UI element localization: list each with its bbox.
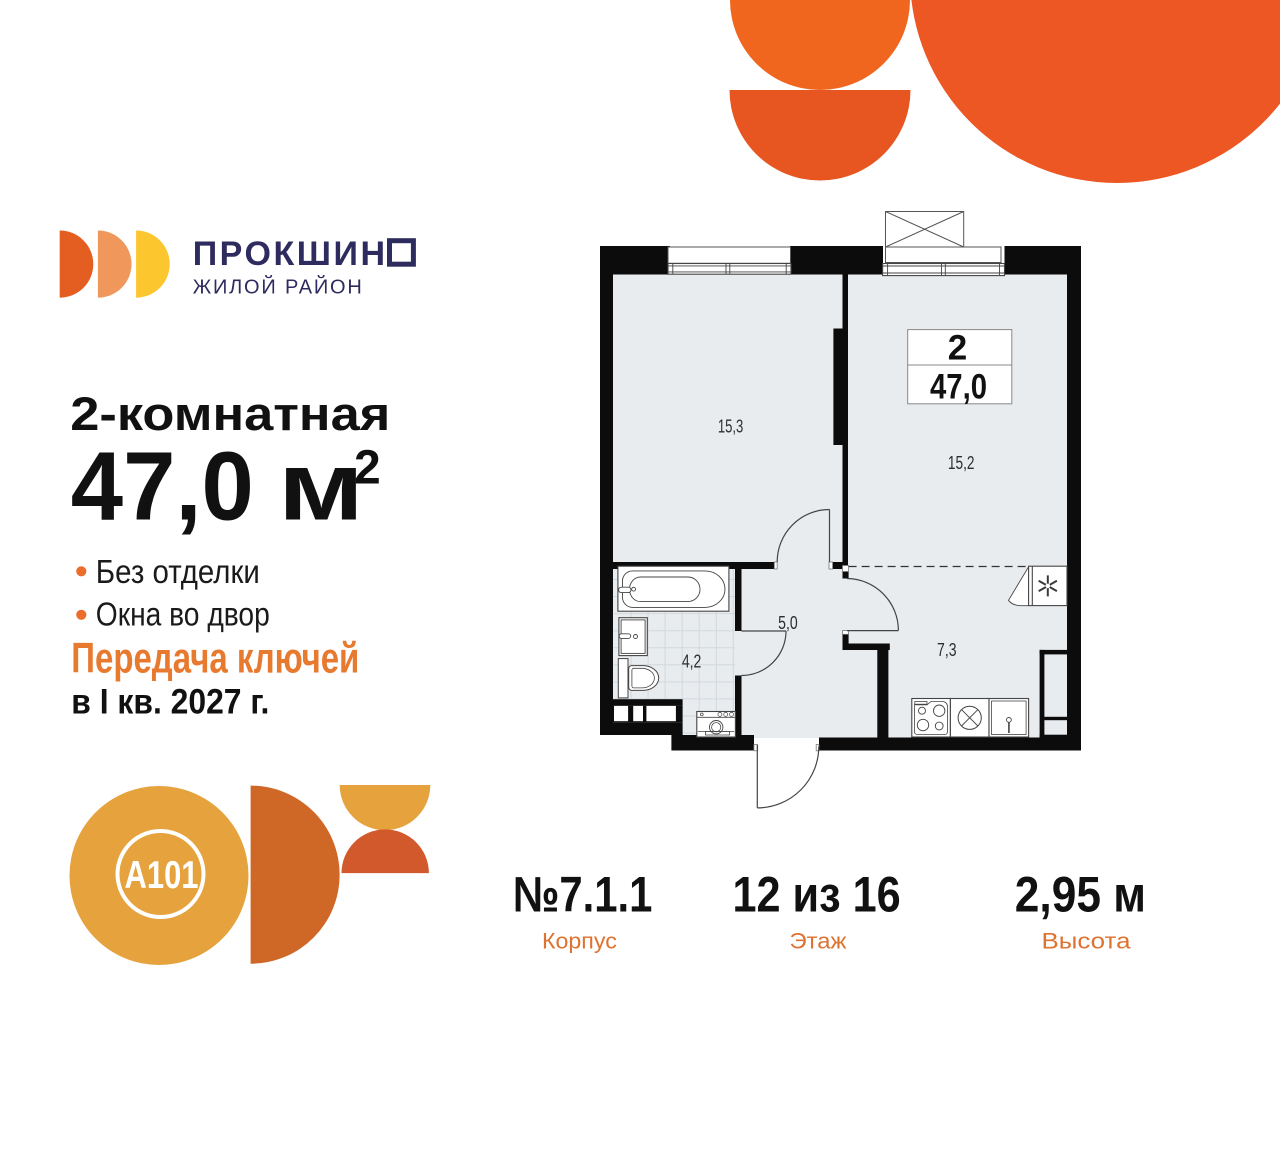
svg-text:15,2: 15,2: [948, 453, 975, 473]
svg-text:Передача ключей: Передача ключей: [71, 635, 359, 683]
svg-text:Без отделки: Без отделки: [96, 553, 260, 590]
svg-text:5,0: 5,0: [778, 613, 798, 633]
svg-text:в I кв. 2027 г.: в I кв. 2027 г.: [71, 683, 269, 722]
svg-text:15,3: 15,3: [718, 417, 744, 437]
svg-text:Высота: Высота: [1042, 928, 1132, 953]
svg-text:ЖИЛОЙ РАЙОН: ЖИЛОЙ РАЙОН: [193, 275, 364, 299]
svg-text:47,0: 47,0: [71, 432, 254, 541]
svg-text:2,95 м: 2,95 м: [1015, 867, 1146, 923]
svg-text:12 из 16: 12 из 16: [732, 867, 900, 923]
svg-text:47,0: 47,0: [930, 368, 987, 407]
svg-text:A101: A101: [125, 854, 199, 897]
svg-text:Корпус: Корпус: [542, 928, 617, 953]
svg-text:м: м: [278, 432, 364, 541]
svg-text:ПРОКШИН: ПРОКШИН: [193, 235, 388, 273]
svg-text:2: 2: [948, 329, 967, 368]
svg-text:Окна во двор: Окна во двор: [96, 595, 270, 632]
svg-text:№7.1.1: №7.1.1: [513, 867, 653, 923]
svg-text:4,2: 4,2: [682, 652, 702, 672]
svg-text:Этаж: Этаж: [790, 928, 847, 953]
svg-text:2: 2: [354, 441, 381, 494]
svg-text:7,3: 7,3: [937, 640, 957, 660]
